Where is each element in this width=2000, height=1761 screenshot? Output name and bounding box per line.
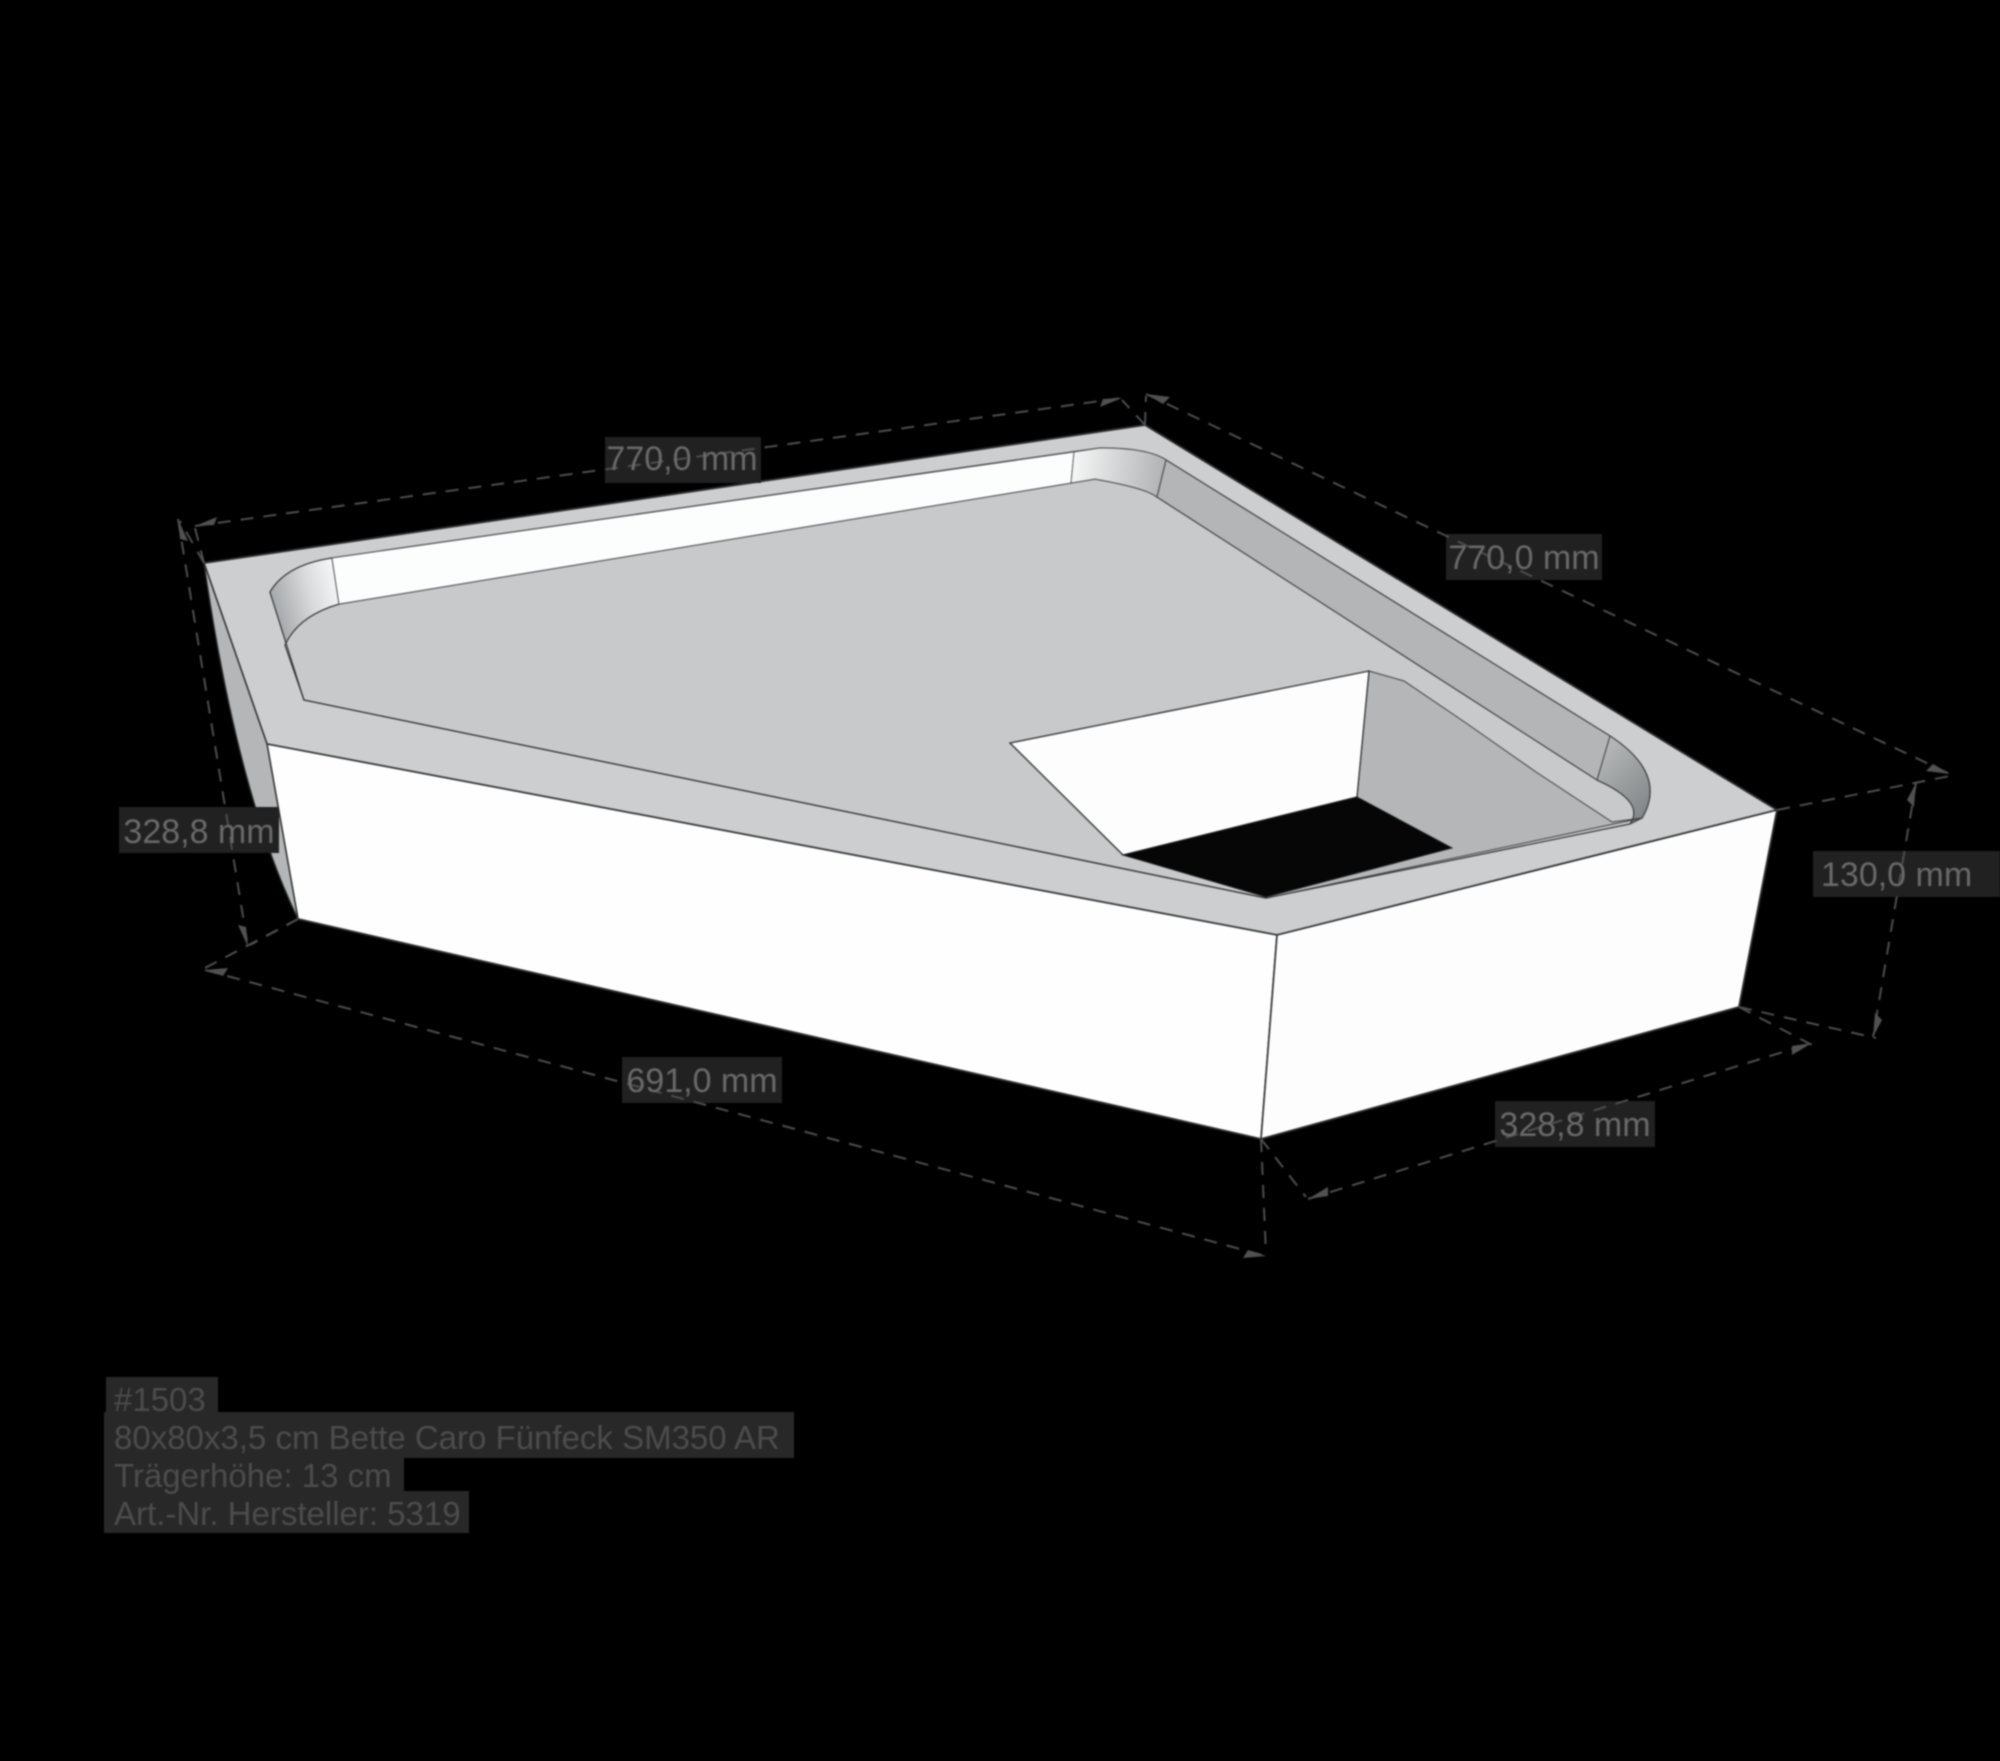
svg-text:328,8 mm: 328,8 mm [123, 813, 274, 851]
svg-text:770,0 mm: 770,0 mm [1448, 539, 1599, 577]
svg-text:#1503: #1503 [114, 1381, 206, 1418]
svg-text:691,0 mm: 691,0 mm [626, 1062, 777, 1100]
svg-text:130,0 mm: 130,0 mm [1821, 856, 1972, 894]
svg-text:80x80x3,5 cm Bette Caro Fünfec: 80x80x3,5 cm Bette Caro Fünfeck SM350 AR [114, 1419, 780, 1456]
svg-text:770,0 mm: 770,0 mm [606, 440, 757, 478]
svg-text:Art.-Nr. Hersteller: 5319: Art.-Nr. Hersteller: 5319 [114, 1495, 461, 1532]
svg-text:Trägerhöhe: 13 cm: Trägerhöhe: 13 cm [114, 1457, 392, 1494]
svg-text:328,8 mm: 328,8 mm [1499, 1106, 1650, 1144]
